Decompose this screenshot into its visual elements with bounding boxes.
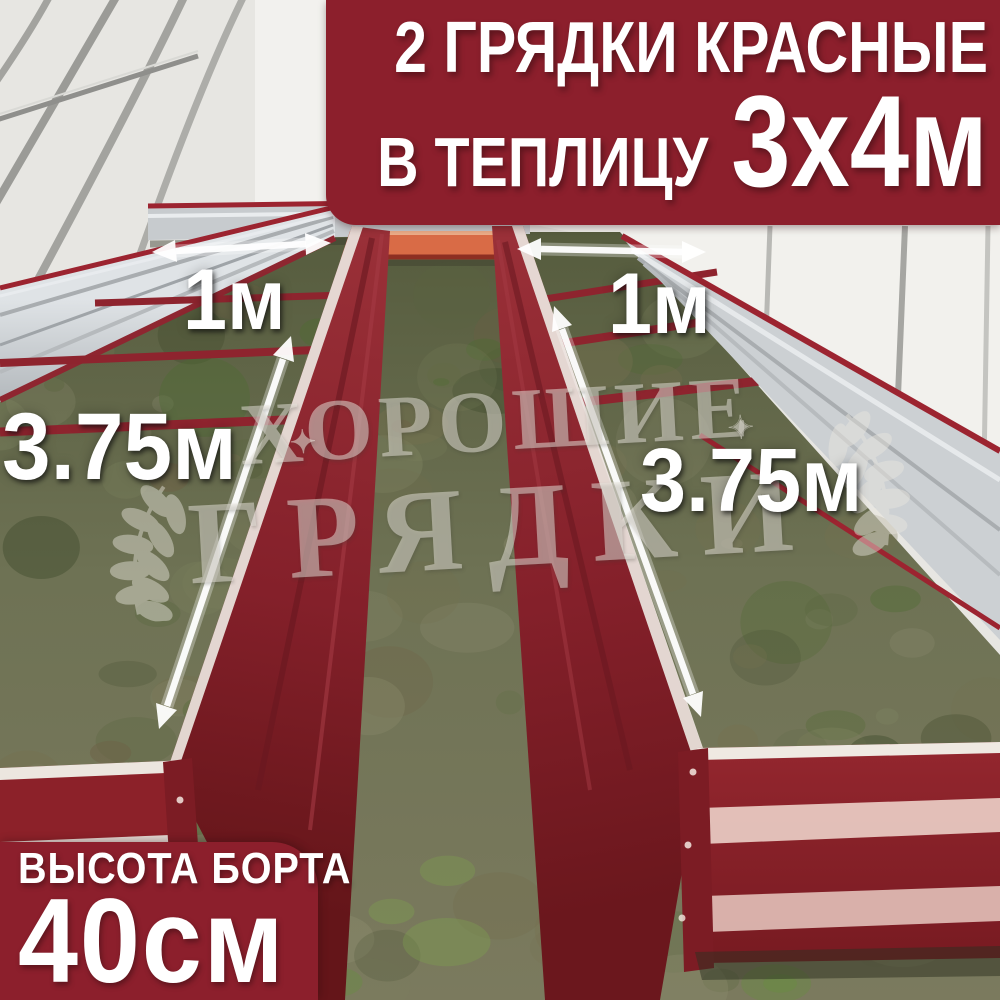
banner-subtitle: В ТЕПЛИЦУ: [377, 122, 708, 202]
right-bed-front-panel: [678, 742, 1000, 980]
badge-value: 40: [18, 874, 142, 1000]
product-image: ✦ ХОРОШИЕ ✦ ГРЯДКИ 1м 1м 3.75м 3.75м: [0, 0, 1000, 1000]
bed-length-label-left: 3.75м: [2, 400, 237, 495]
bed-width-label-left: 1м: [183, 257, 286, 343]
banner-size: 3х4м: [731, 76, 988, 206]
offer-banner: 2 ГРЯДКИ КРАСНЫЕ В ТЕПЛИЦУ 3х4м: [326, 0, 1000, 225]
bed-length-label-right: 3.75м: [640, 436, 862, 526]
height-badge: ВЫСОТА БОРТА 40см: [0, 842, 318, 1000]
star-icon: ✦: [288, 422, 317, 461]
bed-width-label-right: 1м: [608, 261, 711, 347]
badge-unit: см: [142, 874, 286, 1000]
